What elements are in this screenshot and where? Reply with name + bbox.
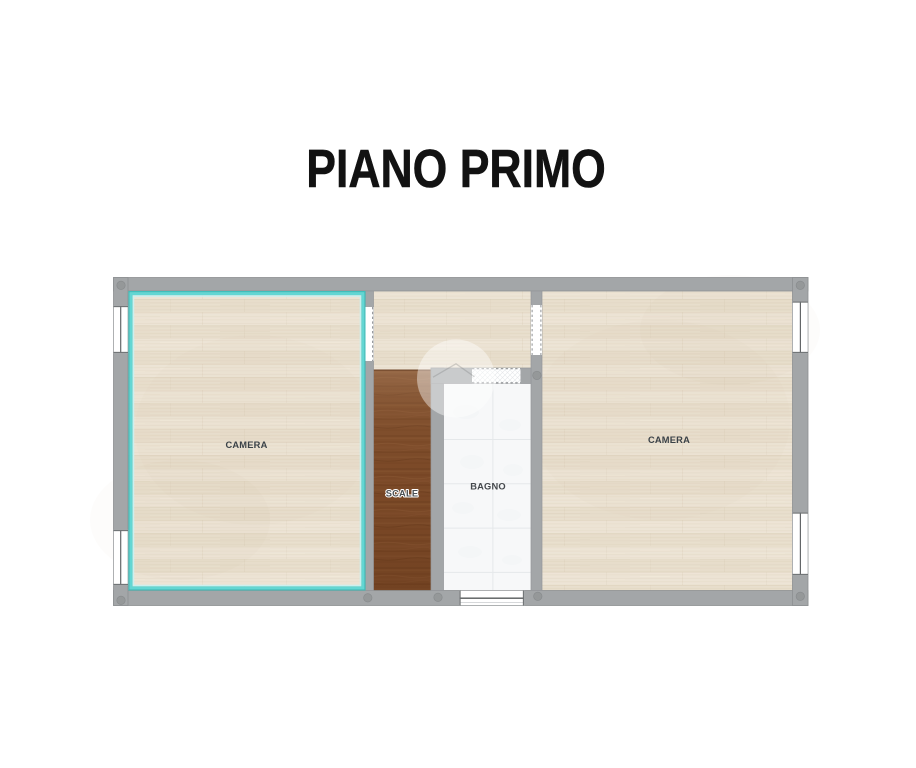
svg-text:BAGNO: BAGNO xyxy=(470,482,506,492)
svg-text:CAMERA: CAMERA xyxy=(648,435,690,445)
svg-text:CAMERA: CAMERA xyxy=(225,440,267,450)
svg-text:SCALE: SCALE xyxy=(386,489,419,499)
